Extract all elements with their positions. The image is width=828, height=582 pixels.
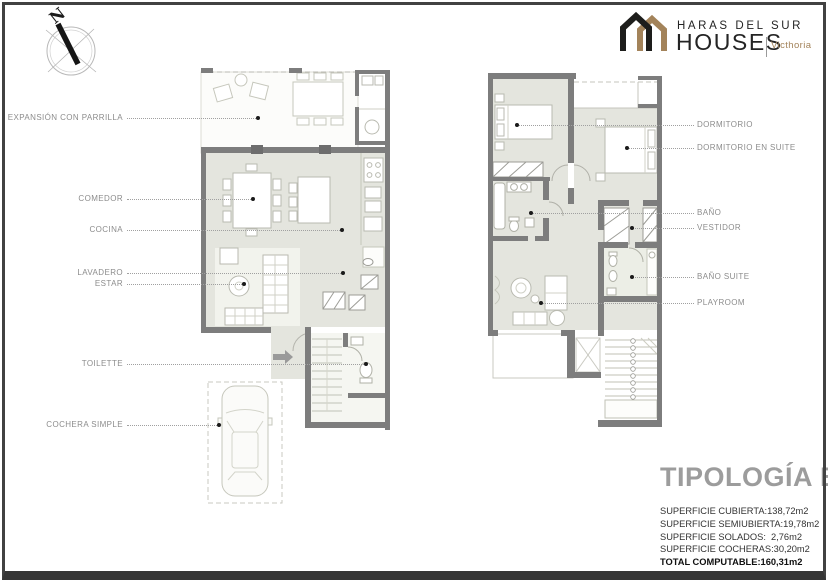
leader-line — [127, 230, 342, 231]
room-label-dormitorio-en-suite: DORMITORIO EN SUITE — [697, 143, 796, 152]
leader-line — [127, 118, 258, 119]
leader-dot — [630, 275, 634, 279]
brand-edition: Victhoria — [771, 40, 811, 51]
leader-dot — [217, 423, 221, 427]
room-label-lavadero: LAVADERO — [0, 268, 123, 277]
surface-total-value: 160,31m2 — [761, 556, 803, 569]
leader-line — [632, 228, 694, 229]
leader-line — [517, 125, 694, 126]
leader-dot — [340, 228, 344, 232]
brand-divider — [766, 37, 767, 57]
room-label-expansion-parrilla: EXPANSIÓN CON PARRILLA — [0, 113, 123, 122]
room-label-dormitorio: DORMITORIO — [697, 120, 753, 129]
leader-line — [127, 199, 253, 200]
surface-value: 2,76m2 — [771, 531, 802, 544]
typology-title: TIPOLOGÍA B — [660, 462, 802, 493]
surface-row: SUPERFICIE SEMIUBIERTA: 19,78m2 — [660, 518, 802, 531]
surface-value: 30,20m2 — [774, 543, 810, 556]
surface-label: SUPERFICIE COCHERAS: — [660, 543, 774, 556]
room-label-comedor: COMEDOR — [0, 194, 123, 203]
leader-dot — [630, 226, 634, 230]
room-label-vestidor: VESTIDOR — [697, 223, 741, 232]
surface-label: SUPERFICIE SOLADOS: — [660, 531, 766, 544]
leader-line — [127, 284, 244, 285]
room-label-bano-suite: BAÑO SUITE — [697, 272, 749, 281]
room-label-estar: ESTAR — [0, 279, 123, 288]
surface-row: SUPERFICIE SOLADOS: 2,76m2 — [660, 531, 802, 544]
surface-total-row: TOTAL COMPUTABLE: 160,31m2 — [660, 556, 802, 569]
leader-dot — [242, 282, 246, 286]
leader-line — [127, 364, 366, 365]
leader-line — [541, 303, 694, 304]
room-label-cocina: COCINA — [0, 225, 123, 234]
typology-summary: TIPOLOGÍA B SUPERFICIE CUBIERTA: 138,72m… — [660, 462, 802, 569]
floorplan-upper — [483, 66, 668, 441]
surface-value: 19,78m2 — [783, 518, 819, 531]
brand-logo-icon — [618, 11, 668, 53]
leader-dot — [625, 146, 629, 150]
leader-dot — [341, 271, 345, 275]
surface-row: SUPERFICIE COCHERAS: 30,20m2 — [660, 543, 802, 556]
room-label-playroom: PLAYROOM — [697, 298, 745, 307]
leader-line — [627, 148, 694, 149]
leader-line — [127, 425, 219, 426]
floorplan-ground — [195, 65, 395, 520]
leader-dot — [529, 211, 533, 215]
leader-dot — [251, 197, 255, 201]
leader-dot — [364, 362, 368, 366]
leader-dot — [515, 123, 519, 127]
leader-line — [127, 273, 343, 274]
leader-line — [632, 277, 694, 278]
leader-line — [531, 213, 694, 214]
leader-dot — [539, 301, 543, 305]
surface-total-label: TOTAL COMPUTABLE: — [660, 556, 761, 569]
room-label-cochera-simple: COCHERA SIMPLE — [0, 420, 123, 429]
compass-icon — [40, 18, 106, 84]
floorplan-sheet: N HARAS DEL SUR HOUSES Victhoria — [0, 0, 828, 582]
room-label-toilette: TOILETTE — [0, 359, 123, 368]
surface-row: SUPERFICIE CUBIERTA: 138,72m2 — [660, 505, 802, 518]
leader-dot — [256, 116, 260, 120]
surface-label: SUPERFICIE CUBIERTA: — [660, 505, 767, 518]
surface-value: 138,72m2 — [767, 505, 808, 518]
surface-label: SUPERFICIE SEMIUBIERTA: — [660, 518, 783, 531]
room-label-bano: BAÑO — [697, 208, 721, 217]
